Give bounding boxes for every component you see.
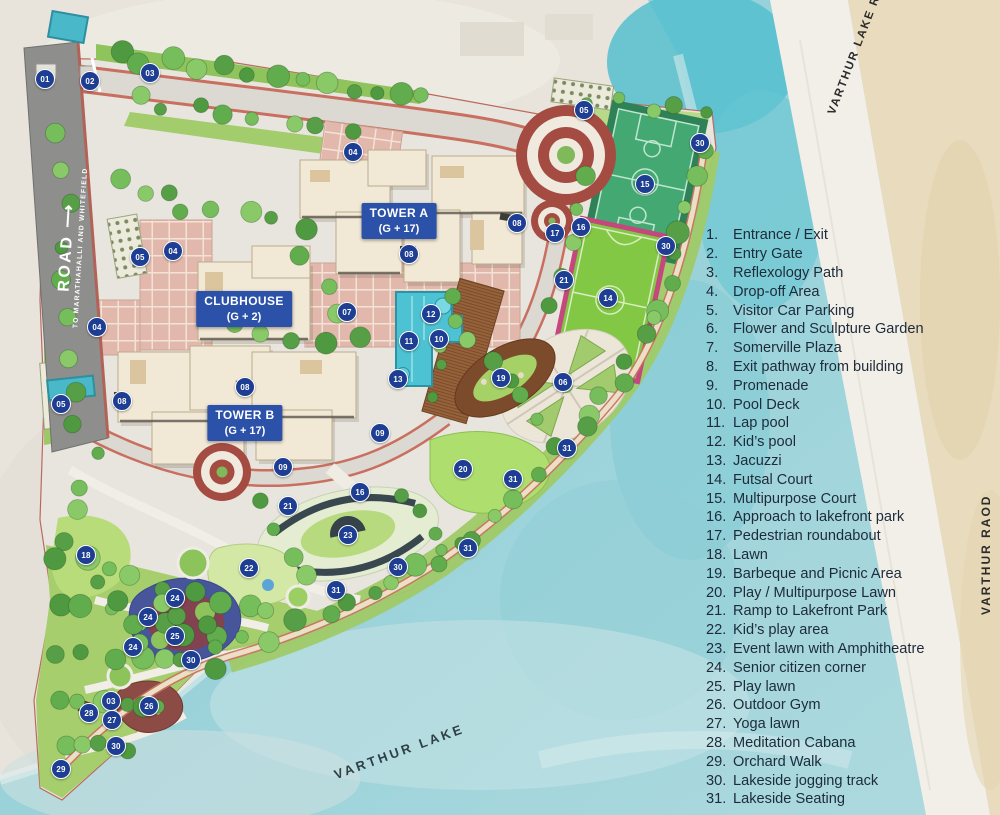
legend-item: 28.Meditation Cabana [706, 734, 924, 753]
legend-item: 5.Visitor Car Parking [706, 301, 924, 320]
map-marker: 21 [278, 496, 298, 516]
legend-item: 12.Kid’s pool [706, 433, 924, 452]
map-marker: 17 [545, 223, 565, 243]
map-marker: 30 [690, 133, 710, 153]
map-marker: 01 [35, 69, 55, 89]
map-marker: 27 [102, 710, 122, 730]
map-marker: 24 [123, 637, 143, 657]
map-marker: 25 [165, 626, 185, 646]
map-marker: 16 [350, 482, 370, 502]
legend-item: 4.Drop-off Area [706, 282, 924, 301]
legend-item: 19.Barbeque and Picnic Area [706, 564, 924, 583]
legend-item: 18.Lawn [706, 546, 924, 565]
tower-a-name: TOWER A [370, 206, 429, 222]
legend-item: 1.Entrance / Exit [706, 226, 924, 245]
legend-item: 11.Lap pool [706, 414, 924, 433]
clubhouse-floors: (G + 2) [204, 310, 284, 324]
legend-item: 6.Flower and Sculpture Garden [706, 320, 924, 339]
map-marker: 08 [235, 377, 255, 397]
map-marker: 10 [429, 329, 449, 349]
map-marker: 31 [326, 580, 346, 600]
map-marker: 24 [138, 607, 158, 627]
map-marker: 13 [388, 369, 408, 389]
map-marker: 03 [101, 691, 121, 711]
road-arrow-icon: ⟶ [59, 202, 78, 228]
map-marker: 30 [106, 736, 126, 756]
clubhouse-label: CLUBHOUSE (G + 2) [196, 291, 292, 327]
legend-item: 9.Promenade [706, 376, 924, 395]
legend-item: 7.Somerville Plaza [706, 339, 924, 358]
legend-item: 8.Exit pathway from building [706, 358, 924, 377]
map-marker: 05 [51, 394, 71, 414]
legend-item: 2.Entry Gate [706, 245, 924, 264]
legend-item: 13.Jacuzzi [706, 452, 924, 471]
map-marker: 08 [399, 244, 419, 264]
legend-item: 31.Lakeside Seating [706, 790, 924, 809]
map-marker: 11 [399, 331, 419, 351]
map-marker: 14 [598, 288, 618, 308]
legend-item: 26.Outdoor Gym [706, 696, 924, 715]
tower-b-floors: (G + 17) [215, 424, 274, 438]
map-marker: 26 [139, 696, 159, 716]
legend-item: 25.Play lawn [706, 677, 924, 696]
legend-item: 21.Ramp to Lakefront Park [706, 602, 924, 621]
legend-item: 14.Futsal Court [706, 470, 924, 489]
legend-item: 10.Pool Deck [706, 395, 924, 414]
map-marker: 15 [635, 174, 655, 194]
legend: 1.Entrance / Exit2.Entry Gate3.Reflexolo… [706, 226, 924, 809]
tower-b-name: TOWER B [215, 408, 274, 424]
legend-item: 17.Pedestrian roundabout [706, 527, 924, 546]
legend-item: 27.Yoga lawn [706, 715, 924, 734]
map-marker: 31 [503, 469, 523, 489]
map-marker: 30 [181, 650, 201, 670]
map-marker: 05 [130, 247, 150, 267]
map-marker: 09 [273, 457, 293, 477]
map-marker: 30 [656, 236, 676, 256]
map-marker: 20 [453, 459, 473, 479]
map-marker: 08 [112, 391, 132, 411]
legend-item: 20.Play / Multipurpose Lawn [706, 583, 924, 602]
map-marker: 30 [388, 557, 408, 577]
map-marker: 24 [165, 588, 185, 608]
map-marker: 07 [337, 302, 357, 322]
map-marker: 03 [140, 63, 160, 83]
tower-a-label: TOWER A (G + 17) [362, 203, 437, 239]
tower-a-floors: (G + 17) [370, 222, 429, 236]
map-marker: 09 [370, 423, 390, 443]
map-marker: 22 [239, 558, 259, 578]
legend-item: 22.Kid’s play area [706, 621, 924, 640]
map-marker: 23 [338, 525, 358, 545]
legend-item: 24.Senior citizen corner [706, 658, 924, 677]
legend-item: 15.Multipurpose Court [706, 489, 924, 508]
map-marker: 19 [491, 368, 511, 388]
map-marker: 31 [458, 538, 478, 558]
legend-item: 16.Approach to lakefront park [706, 508, 924, 527]
tower-b-label: TOWER B (G + 17) [207, 405, 282, 441]
map-marker: 16 [571, 217, 591, 237]
site-plan-map: TOWER A (G + 17) CLUBHOUSE (G + 2) TOWER… [0, 0, 1000, 815]
legend-item: 30.Lakeside jogging track [706, 771, 924, 790]
varthur-road-label: VARTHUR RAOD [979, 495, 993, 615]
map-marker: 29 [51, 759, 71, 779]
clubhouse-name: CLUBHOUSE [204, 294, 284, 310]
map-marker: 31 [557, 438, 577, 458]
map-marker: 05 [574, 100, 594, 120]
legend-item: 23.Event lawn with Amphitheatre [706, 640, 924, 659]
legend-item: 29.Orchard Walk [706, 752, 924, 771]
legend-item: 3.Reflexology Path [706, 264, 924, 283]
map-marker: 04 [343, 142, 363, 162]
map-marker: 04 [163, 241, 183, 261]
map-marker: 02 [80, 71, 100, 91]
map-marker: 04 [87, 317, 107, 337]
map-marker: 06 [553, 372, 573, 392]
map-marker: 28 [79, 703, 99, 723]
map-marker: 21 [554, 270, 574, 290]
legend-list: 1.Entrance / Exit2.Entry Gate3.Reflexolo… [706, 226, 924, 809]
map-marker: 18 [76, 545, 96, 565]
map-marker: 12 [421, 304, 441, 324]
map-marker: 08 [507, 213, 527, 233]
